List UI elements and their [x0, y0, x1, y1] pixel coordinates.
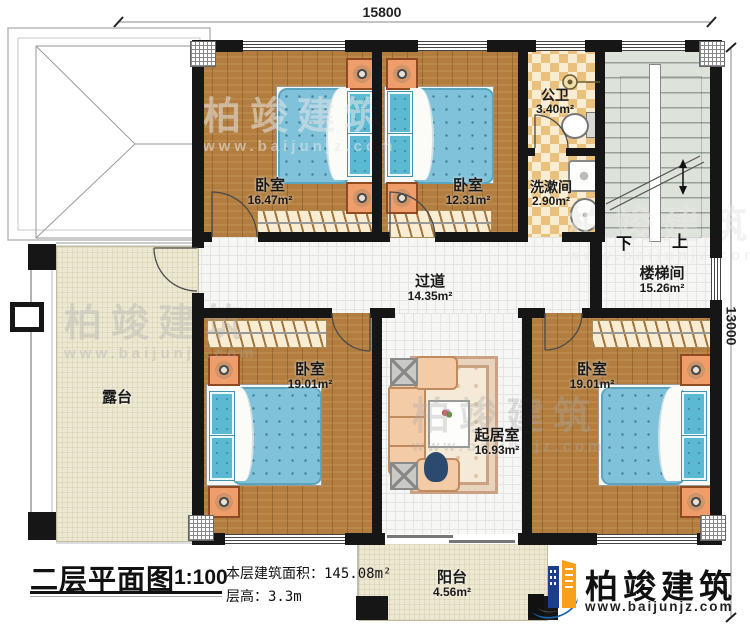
door-swings: [0, 0, 750, 635]
room-name: 过道: [380, 274, 480, 290]
room-name: 楼梯间: [612, 266, 712, 282]
title-underline: [30, 596, 222, 597]
floor-height-value: 3.3m: [268, 589, 302, 605]
room-area: 19.01m²: [542, 378, 642, 391]
dimension-top: 15800: [352, 4, 412, 20]
company-logo-icon: [528, 556, 584, 622]
floor-height-label: 层高：: [226, 589, 268, 605]
room-area: 3.40m²: [527, 103, 583, 116]
room-area: 16.47m²: [220, 194, 320, 207]
room-area: 14.35m²: [380, 290, 480, 303]
dimension-right: 13000: [723, 307, 739, 346]
plan-scale: 1:100: [174, 566, 228, 590]
room-name: 卧室: [220, 178, 320, 194]
floor-area-label: 本层建筑面积：: [226, 566, 324, 582]
room-label-terrace: 露台: [67, 390, 167, 406]
room-area: 16.93m²: [447, 444, 547, 457]
room-name: 卧室: [542, 362, 642, 378]
room-area: 15.26m²: [612, 282, 712, 295]
room-name: 公卫: [527, 88, 583, 103]
stairs-up-label: 上: [672, 228, 688, 252]
room-label-public-bath: 公卫 3.40m²: [527, 88, 583, 115]
room-label-bedroom-tm: 卧室 12.31m²: [418, 178, 518, 206]
floor-area-value: 145.08m²: [324, 566, 391, 582]
room-label-living-room: 起居室 16.93m²: [447, 428, 547, 456]
title-underline: [30, 591, 222, 594]
floor-area-annotation: 本层建筑面积：145.08m²: [226, 563, 391, 583]
room-name: 阳台: [402, 570, 502, 586]
room-label-washroom: 洗漱间 2.90m²: [514, 180, 588, 207]
floor-plan-canvas: 柏竣建筑 www.baijunjz.com 柏竣建筑 www.baijunjz.…: [0, 0, 750, 635]
floor-height-annotation: 层高：3.3m: [226, 586, 302, 606]
room-area: 19.01m²: [260, 378, 360, 391]
room-label-stairwell: 楼梯间 15.26m²: [612, 266, 712, 294]
room-name: 洗漱间: [514, 180, 588, 195]
room-name: 卧室: [260, 362, 360, 378]
room-label-bedroom-tl: 卧室 16.47m²: [220, 178, 320, 206]
company-website: www.baijunjz.com: [585, 599, 734, 614]
room-label-balcony: 阳台 4.56m²: [402, 570, 502, 598]
room-area: 4.56m²: [402, 586, 502, 599]
room-label-hallway: 过道 14.35m²: [380, 274, 480, 302]
room-label-bedroom-bl: 卧室 19.01m²: [260, 362, 360, 390]
room-name: 卧室: [418, 178, 518, 194]
stairs-down-label: 下: [616, 230, 632, 254]
room-area: 2.90m²: [514, 195, 588, 208]
room-area: 12.31m²: [418, 194, 518, 207]
room-name: 起居室: [447, 428, 547, 444]
room-label-bedroom-br: 卧室 19.01m²: [542, 362, 642, 390]
room-name: 露台: [67, 390, 167, 406]
